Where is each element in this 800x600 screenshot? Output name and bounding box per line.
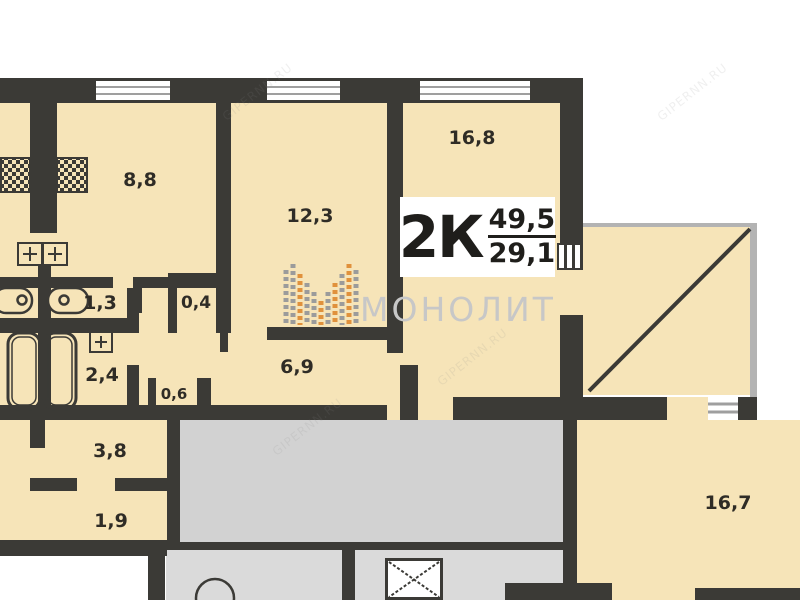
elevator-icon bbox=[385, 558, 443, 600]
window bbox=[420, 81, 530, 100]
neighbor-area-right bbox=[563, 420, 800, 600]
unit-type-badge: 2К 49,5 29,1 bbox=[400, 197, 555, 277]
wall-segment bbox=[342, 544, 355, 600]
window bbox=[708, 397, 738, 419]
balcony-door-opening bbox=[560, 270, 583, 315]
room-area-label-room-16: 16,8 bbox=[449, 127, 496, 149]
wall-segment bbox=[127, 365, 139, 405]
unit-area-living: 29,1 bbox=[488, 238, 557, 269]
balcony-rail-right bbox=[750, 223, 757, 420]
wall-segment bbox=[695, 588, 800, 600]
wall-segment bbox=[167, 420, 180, 542]
wall-segment bbox=[453, 397, 667, 420]
unit-type: 2К bbox=[399, 208, 483, 266]
room-area-label-room-12: 12,3 bbox=[287, 205, 334, 227]
unit-area-total: 49,5 bbox=[488, 205, 557, 238]
wall-segment bbox=[168, 273, 216, 283]
wall-segment bbox=[560, 103, 583, 243]
site-watermark: GIPERNN.RU bbox=[655, 60, 731, 123]
watermark-text: МОНОЛИТ bbox=[360, 290, 556, 329]
wall-segment bbox=[563, 420, 577, 590]
wall-segment bbox=[148, 556, 165, 600]
entrance-opening bbox=[387, 395, 453, 420]
door-jamb bbox=[148, 378, 156, 408]
room-area-label-wc: 1,3 bbox=[83, 292, 117, 314]
wall-segment bbox=[400, 365, 418, 420]
wall-segment bbox=[0, 540, 167, 556]
wall-segment bbox=[505, 583, 612, 600]
balcony-area bbox=[583, 225, 755, 395]
wall-segment bbox=[216, 103, 231, 333]
wall-segment bbox=[197, 378, 211, 408]
vent-shaft-icon bbox=[557, 243, 583, 270]
stair-hall bbox=[166, 550, 563, 600]
wall-segment bbox=[166, 542, 563, 550]
neighbor-area-left bbox=[0, 405, 167, 540]
room-area-label-neighbor-closet: 1,9 bbox=[94, 510, 128, 532]
wall-segment bbox=[168, 283, 177, 333]
wall-segment bbox=[30, 478, 77, 491]
room-area-label-niche-06: 0,6 bbox=[161, 385, 188, 403]
room-area-label-neighbor-room: 16,7 bbox=[705, 492, 752, 514]
wall-segment bbox=[115, 478, 168, 491]
wall-segment bbox=[738, 397, 757, 420]
room-area-label-neighbor-hallway: 3,8 bbox=[93, 440, 127, 462]
room-area-label-hallway: 6,9 bbox=[280, 356, 314, 378]
window bbox=[96, 81, 170, 100]
room-area-label-kitchen: 8,8 bbox=[123, 169, 157, 191]
balcony-rail-top bbox=[583, 223, 753, 227]
room-area-label-bathroom: 2,4 bbox=[85, 364, 119, 386]
door-jamb bbox=[220, 327, 228, 352]
floor-plan: GIPERNN.RU GIPERNN.RU GIPERNN.RU GIPERNN… bbox=[0, 0, 800, 600]
wall-segment bbox=[0, 277, 113, 288]
room-area-label-closet-04: 0,4 bbox=[181, 293, 211, 313]
common-corridor bbox=[180, 420, 563, 542]
wall-segment bbox=[0, 318, 130, 333]
unit-areas: 49,5 29,1 bbox=[488, 205, 557, 269]
wall-segment bbox=[38, 266, 51, 410]
door-jamb bbox=[30, 420, 45, 448]
balcony-door-opening-2 bbox=[667, 397, 708, 420]
wall-segment bbox=[30, 103, 57, 233]
